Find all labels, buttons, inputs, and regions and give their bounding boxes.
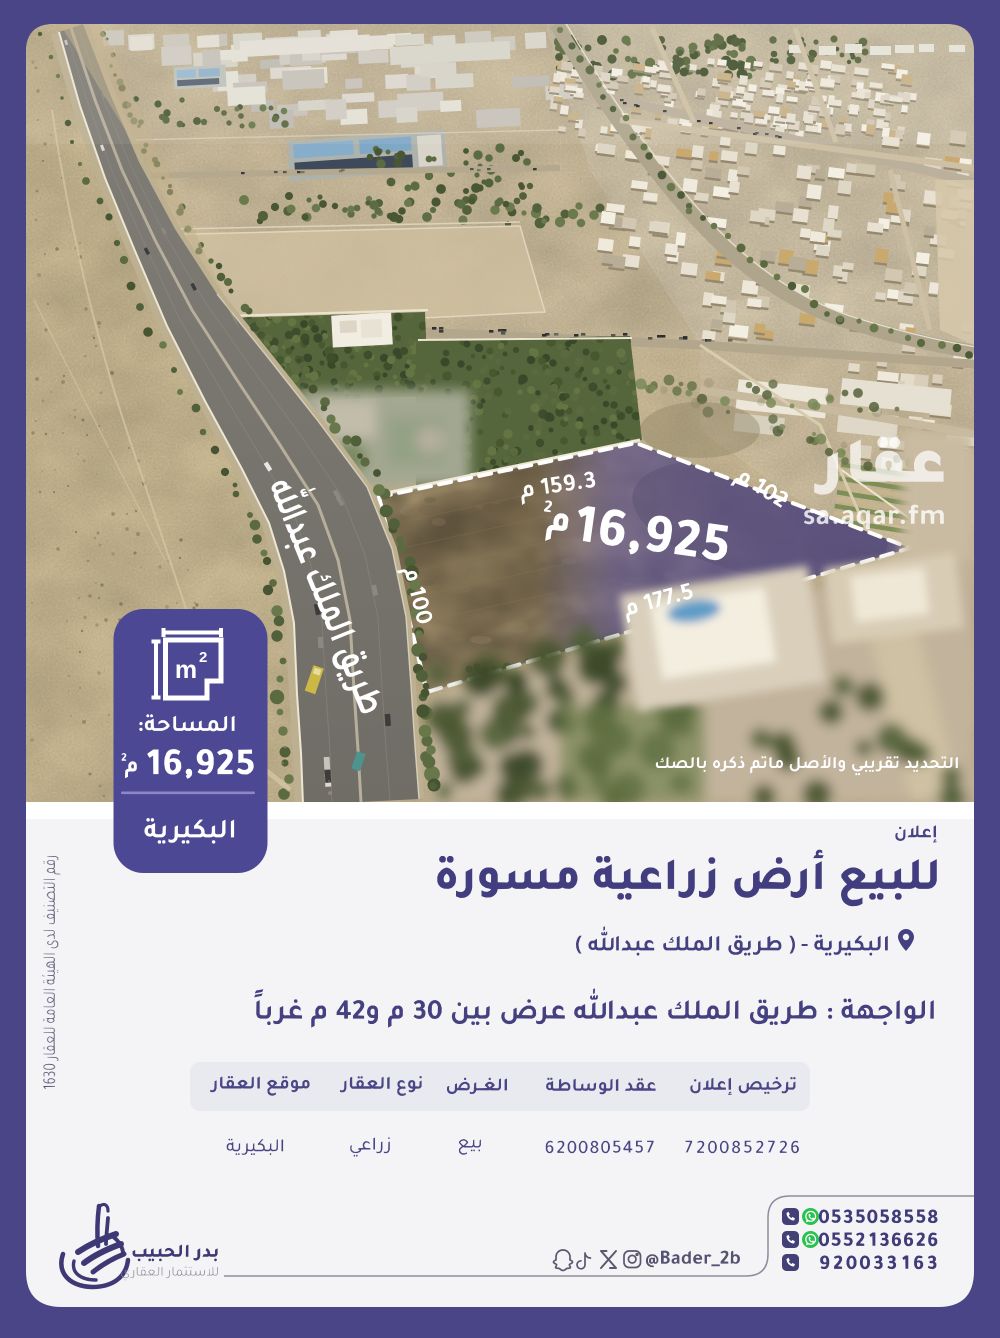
svg-text:2: 2 [199,649,207,666]
svg-text:m: m [175,656,197,684]
